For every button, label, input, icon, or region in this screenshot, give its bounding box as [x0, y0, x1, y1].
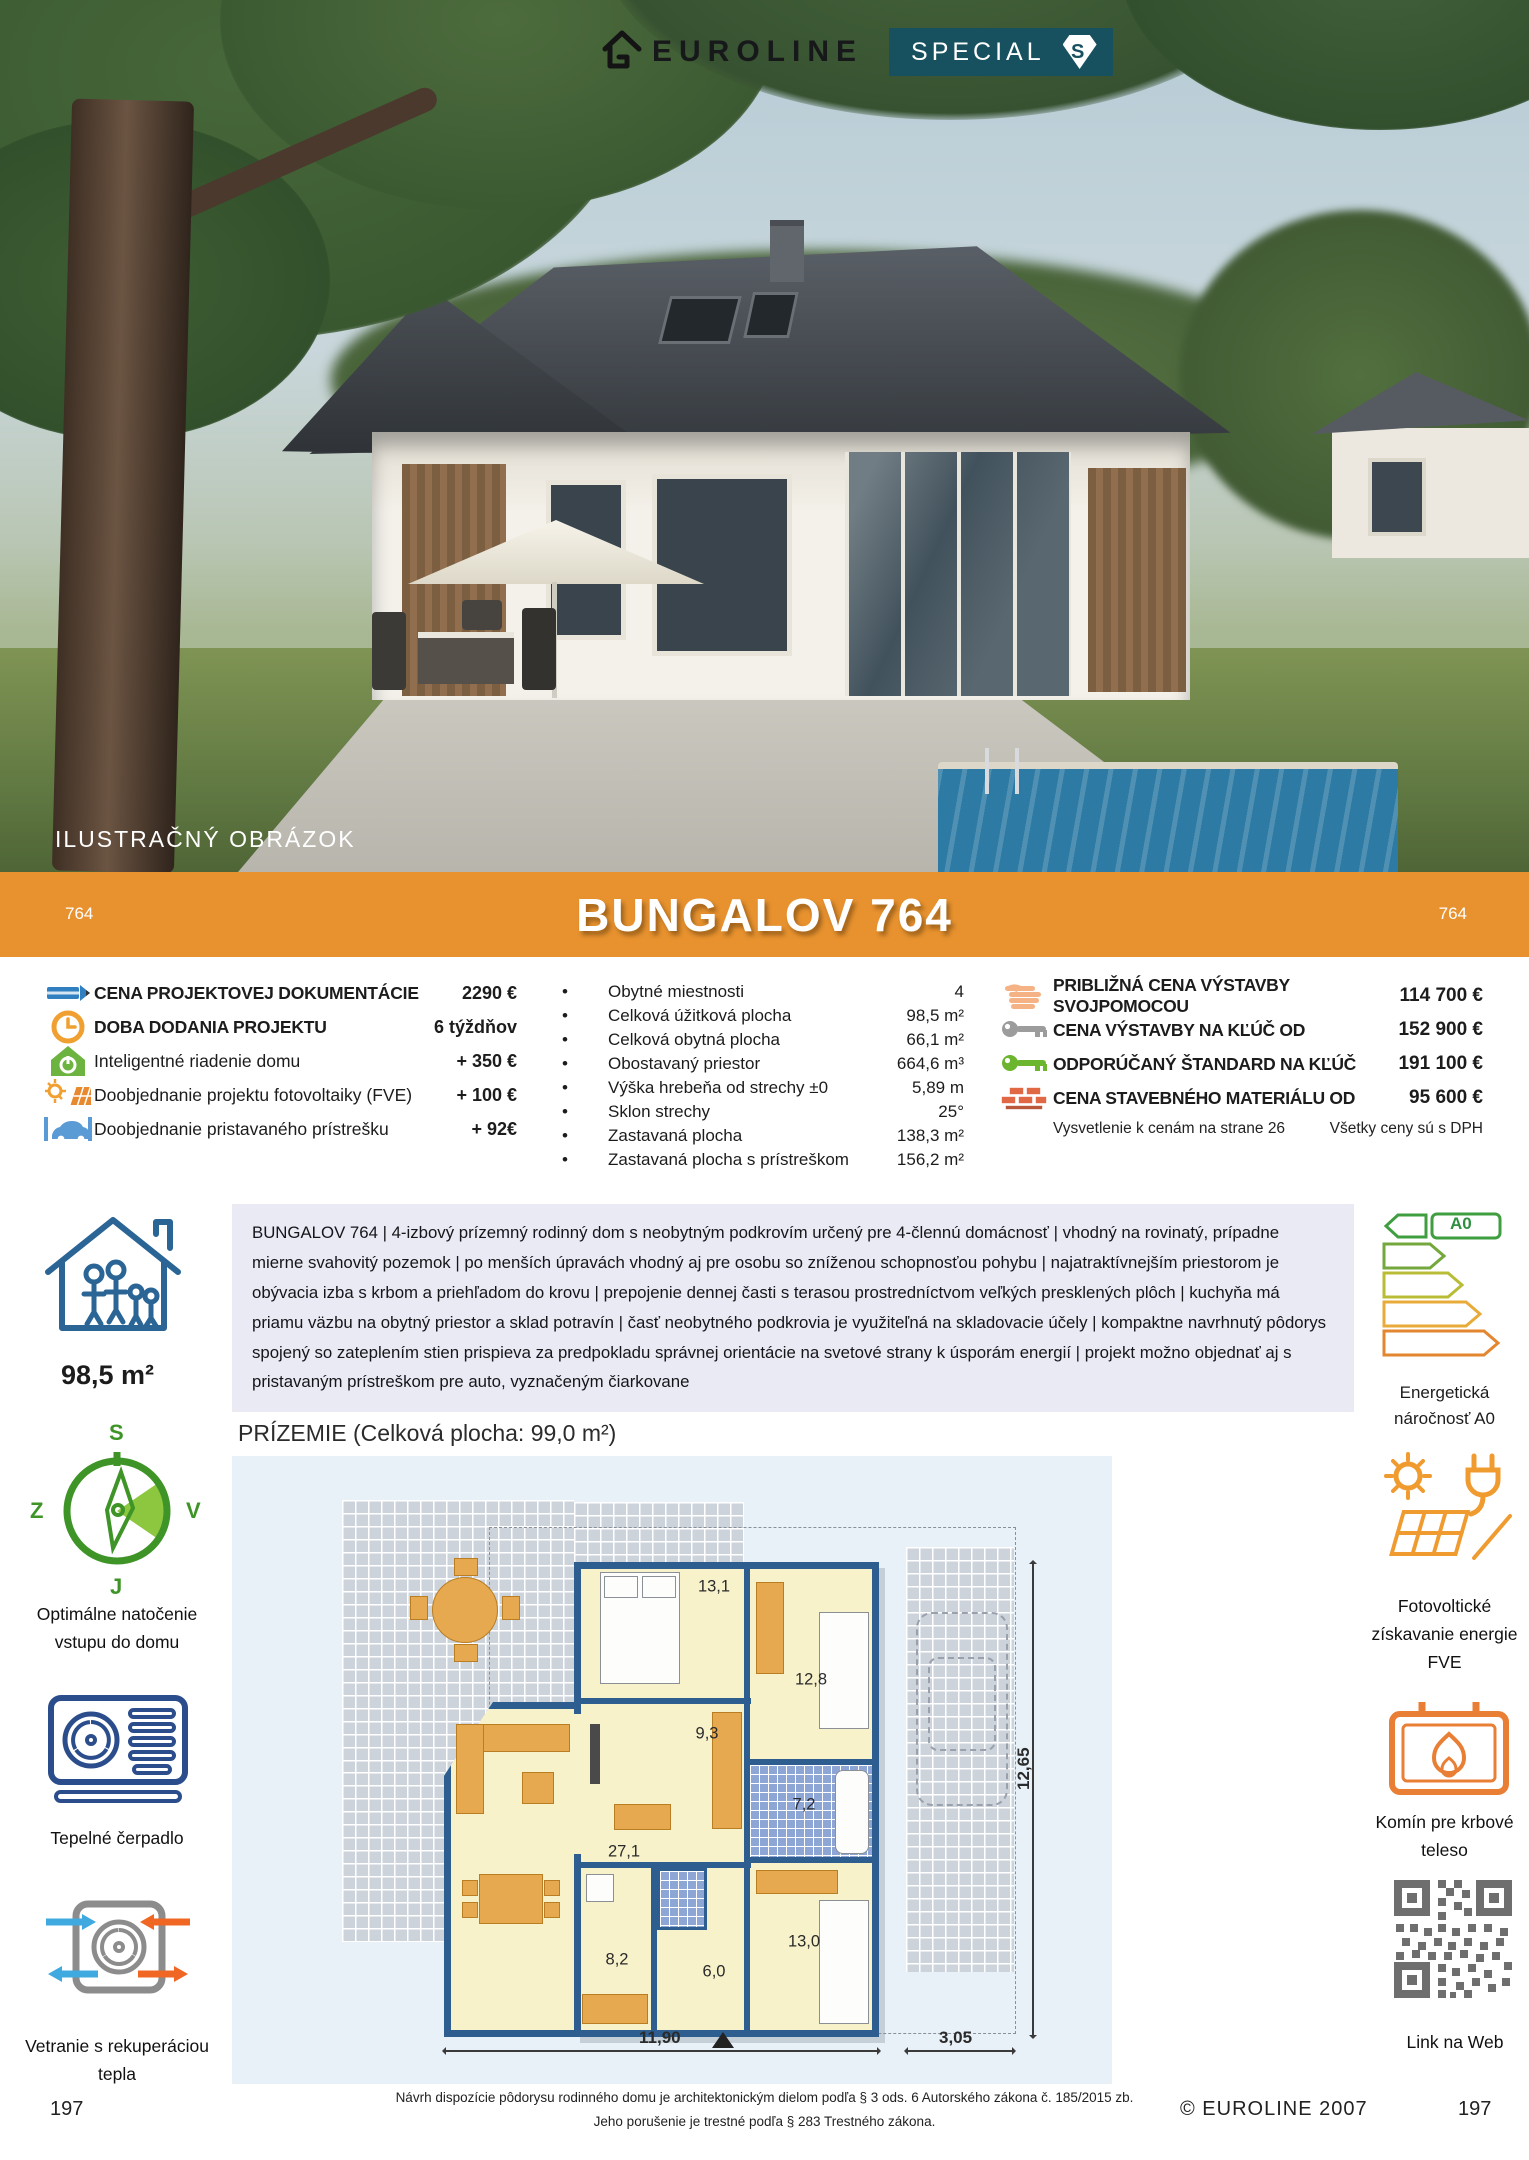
background-house-window: [1368, 458, 1426, 536]
floorplan: 13,1 12,8 9,3 7,2 27,1 8,2 6,0 13,0 11,9…: [314, 1472, 1074, 2068]
solar-icon: [42, 1079, 94, 1111]
clock-icon: [42, 1010, 94, 1044]
tree-trunk: [52, 99, 194, 872]
chimney: [770, 220, 804, 282]
spec-row: Zastavaná plocha138,3 m²: [556, 1126, 964, 1148]
dimension-height: 12,65: [1014, 1747, 1034, 1790]
house-family-icon: [38, 1208, 188, 1348]
dimension-width-main: 11,90: [639, 2028, 681, 2048]
spec-row: DOBA DODANIA PROJEKTU 6 týždňov: [42, 1012, 517, 1042]
bullet-icon: [556, 1006, 608, 1028]
washing-machine: [586, 1874, 614, 1902]
bullet-icon: [556, 1078, 608, 1100]
dining-chair: [462, 1902, 478, 1918]
fve-icon: [1382, 1448, 1516, 1575]
catalog-page: ILUSTRAČNÝ OBRÁZOK EUROLINE SPECIAL S 76…: [0, 0, 1529, 2160]
entrance-arrow-icon: [712, 2032, 734, 2048]
compass-east-label: V: [186, 1498, 201, 1524]
wood-slat-corner: [1088, 468, 1186, 692]
special-badge-label: SPECIAL: [911, 38, 1045, 67]
terrace-area: [342, 1772, 444, 1942]
patio-table: [418, 632, 514, 684]
room-area-label: 13,0: [788, 1933, 820, 1952]
car-cabin-outline: [928, 1657, 996, 1751]
dimension-width-carport: 3,05: [939, 2028, 972, 2048]
model-code-left: 764: [65, 904, 93, 924]
skylight: [658, 296, 742, 344]
dining-chair: [544, 1902, 560, 1918]
room-area-label: 27,1: [608, 1843, 640, 1862]
spec-row: CENA PROJEKTOVEJ DOKUMENTÁCIE 2290 €: [42, 978, 517, 1008]
photo-caption: ILUSTRAČNÝ OBRÁZOK: [55, 826, 356, 853]
qr-label: Link na Web: [1380, 2028, 1529, 2056]
energy-rating-icon: A0: [1382, 1212, 1508, 1363]
tree-canopy: [1120, 0, 1529, 130]
skylight: [743, 292, 799, 338]
ventilation-label: Vetranie s rekuperáciou tepla: [12, 2032, 222, 2088]
dimension-line: [1032, 1562, 1034, 2037]
usable-area-label: 98,5 m²: [0, 1360, 215, 1391]
window-double: [652, 474, 792, 656]
room-area-label: 7,2: [793, 1796, 816, 1815]
hero-photo: ILUSTRAČNÝ OBRÁZOK EUROLINE SPECIAL S: [0, 0, 1529, 872]
spec-row: CENA STAVEBNÉHO MATERIÁLU OD 95 600 €: [995, 1082, 1483, 1114]
copyright: © EUROLINE 2007: [1180, 2098, 1368, 2121]
room-area-label: 13,1: [698, 1578, 730, 1597]
compass-label: Optimálne natočenie vstupu do domu: [12, 1600, 222, 1656]
sofa: [456, 1724, 484, 1814]
qr-code: [1392, 1878, 1514, 2005]
bullet-icon: [556, 1102, 608, 1124]
spec-row: Doobjednanie projektu fotovoltaiky (FVE)…: [42, 1080, 517, 1110]
dimension-line: [444, 2050, 879, 2052]
spec-row: Obostavaný priestor664,6 m³: [556, 1054, 964, 1076]
terrace-chair: [454, 1644, 478, 1662]
floorplan-title: PRÍZEMIE (Celková plocha: 99,0 m²): [238, 1420, 616, 1447]
terrace-table: [432, 1577, 498, 1643]
terrace-chair: [454, 1558, 478, 1576]
spec-row: Doobjednanie pristavaného prístrešku + 9…: [42, 1114, 517, 1144]
bullet-icon: [556, 1126, 608, 1148]
room-area-label: 12,8: [795, 1671, 827, 1690]
compass-north-label: S: [109, 1420, 124, 1446]
armchair: [522, 1772, 554, 1804]
smart-home-icon: [42, 1044, 94, 1078]
brand-header: EUROLINE SPECIAL S: [600, 26, 1113, 78]
key-green-icon: [995, 1053, 1053, 1075]
kitchen-island: [614, 1804, 671, 1830]
bricks-icon: [995, 1085, 1053, 1111]
model-code-right: 764: [1439, 904, 1467, 924]
key-grey-icon: [995, 1019, 1053, 1041]
brand-logo-text: EUROLINE: [652, 35, 863, 69]
compass-west-label: Z: [30, 1498, 43, 1524]
background-house: [1332, 428, 1529, 558]
dimension-line: [906, 2050, 1014, 2052]
room-area-label: 6,0: [703, 1963, 726, 1982]
spec-row: Zastavaná plocha s prístreškom156,2 m²: [556, 1150, 964, 1172]
living-opening: [568, 1714, 586, 1854]
wall-partition: [750, 1857, 872, 1863]
pencil-icon: [42, 982, 94, 1004]
bed-pillow: [604, 1576, 638, 1598]
wc-floor: [657, 1868, 707, 1930]
bullet-icon: [556, 1150, 608, 1172]
page-title: BUNGALOV 764: [576, 888, 953, 942]
spec-row: Celková obytná plocha66,1 m²: [556, 1030, 964, 1052]
dining-chair: [544, 1880, 560, 1896]
s-diamond-icon: S: [1063, 35, 1097, 69]
bed-pillow: [642, 1576, 676, 1598]
terrace-chair: [410, 1596, 428, 1620]
patio-chair: [462, 600, 502, 630]
pool-ladder-icon: [985, 748, 1019, 794]
chimney-icon: [1388, 1698, 1510, 1803]
room-area-label: 9,3: [696, 1725, 719, 1744]
heat-pump-icon: [42, 1692, 194, 1813]
spec-row: Inteligentné riadenie domu + 350 €: [42, 1046, 517, 1076]
patio-chair: [522, 608, 556, 690]
hand-icon: [995, 982, 1053, 1010]
bathtub: [835, 1770, 869, 1854]
spec-row: Obytné miestnosti4: [556, 982, 964, 1004]
spec-row: Celková úžitková plocha98,5 m²: [556, 1006, 964, 1028]
compass-south-label: J: [110, 1574, 122, 1600]
patio-chair: [372, 612, 406, 690]
bullet-icon: [556, 1030, 608, 1052]
spec-row: ODPORÚČANÝ ŠTANDARD NA KĽÚČ 191 100 €: [995, 1048, 1483, 1080]
ventilation-icon: [42, 1896, 194, 2023]
euroline-house-icon: [600, 28, 644, 77]
spec-row: CENA VÝSTAVBY NA KĽÚČ OD 152 900 €: [995, 1014, 1483, 1046]
chimney-label: Komín pre krbové teleso: [1360, 1808, 1529, 1864]
special-badge: SPECIAL S: [889, 28, 1113, 76]
energy-badge: A0: [1450, 1214, 1472, 1234]
vat-note: Všetky ceny sú s DPH: [1243, 1120, 1483, 1138]
wardrobe: [756, 1582, 784, 1674]
heat-pump-label: Tepelné čerpadlo: [12, 1824, 222, 1852]
spec-row: Výška hrebeňa od strechy ±05,89 m: [556, 1078, 964, 1100]
bullet-icon: [556, 1054, 608, 1076]
page-number-right: 197: [1458, 2098, 1491, 2121]
terrace-chair: [502, 1596, 520, 1620]
compass-icon: S V J Z: [52, 1446, 182, 1581]
dining-table: [479, 1874, 543, 1924]
floorplan-panel: 13,1 12,8 9,3 7,2 27,1 8,2 6,0 13,0 11,9…: [232, 1456, 1112, 2084]
house-description: BUNGALOV 764 | 4-izbový prízemný rodinný…: [232, 1204, 1354, 1412]
dining-chair: [462, 1880, 478, 1896]
storage-counter: [582, 1994, 648, 2024]
energy-label: Energetická náročnosť A0: [1360, 1380, 1529, 1433]
spec-row: Sklon strechy25°: [556, 1102, 964, 1124]
title-banner: 764 BUNGALOV 764 764: [0, 872, 1529, 957]
glass-wall: [845, 452, 1071, 696]
carport-icon: [42, 1115, 94, 1143]
spec-row: PRIBLIŽNÁ CENA VÝSTAVBY SVOJPOMOCOU 114 …: [995, 980, 1483, 1012]
bullet-icon: [556, 982, 608, 1004]
wardrobe: [756, 1870, 838, 1894]
tv-cabinet: [590, 1724, 600, 1784]
bed: [819, 1900, 869, 2024]
room-area-label: 8,2: [606, 1951, 629, 1970]
fve-label: Fotovoltické získavanie energie FVE: [1355, 1592, 1529, 1676]
wall-partition: [581, 1698, 751, 1704]
